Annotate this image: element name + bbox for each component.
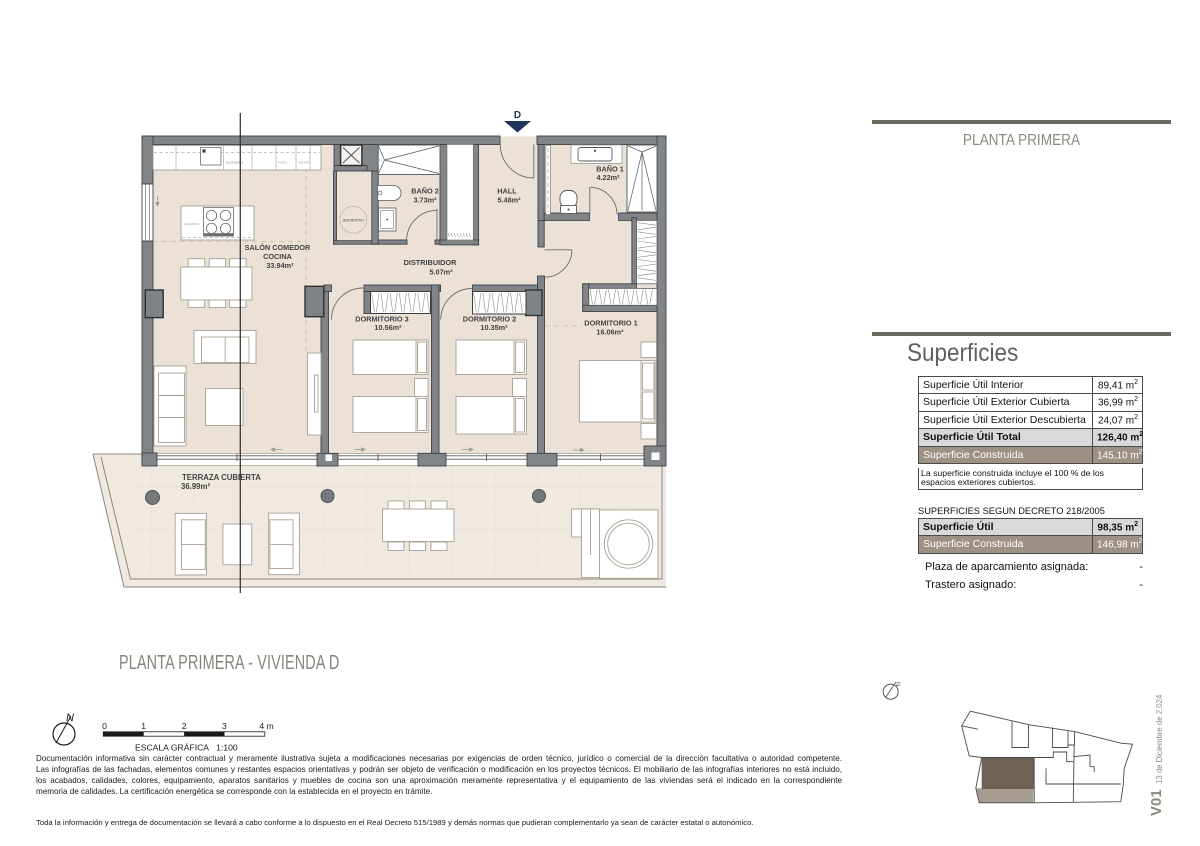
svg-text:33.94m²: 33.94m²	[266, 261, 294, 270]
svg-text:DISTRIBUIDOR: DISTRIBUIDOR	[404, 258, 457, 267]
svg-text:10.35m²: 10.35m²	[480, 323, 508, 332]
svg-text:BAÑO 2: BAÑO 2	[411, 187, 439, 196]
svg-text:2: 2	[182, 721, 187, 731]
svg-text:nevera: nevera	[298, 161, 309, 165]
svg-text:0: 0	[102, 721, 107, 731]
svg-text:ESCALA GRÁFICA 1:100: ESCALA GRÁFICA 1:100	[135, 743, 238, 753]
svg-text:SALÓN COMEDOR: SALÓN COMEDOR	[245, 243, 311, 252]
svg-text:DORMITORIO 1: DORMITORIO 1	[584, 319, 637, 328]
svg-text:horno: horno	[278, 161, 287, 165]
svg-text:5.07m²: 5.07m²	[429, 268, 453, 277]
svg-text:D: D	[514, 110, 521, 121]
svg-text:COCINA: COCINA	[263, 252, 293, 261]
svg-text:N: N	[66, 712, 74, 724]
svg-text:16.06m²: 16.06m²	[596, 328, 624, 337]
svg-text:4.22m²: 4.22m²	[596, 173, 620, 182]
svg-text:1: 1	[141, 721, 146, 731]
svg-text:36.99m²: 36.99m²	[181, 482, 210, 491]
svg-text:aerotermo: aerotermo	[343, 218, 364, 223]
svg-text:HALL: HALL	[497, 187, 517, 196]
svg-text:N: N	[894, 682, 900, 686]
svg-text:10.56m²: 10.56m²	[374, 323, 402, 332]
svg-text:TERRAZA CUBIERTA: TERRAZA CUBIERTA	[182, 473, 261, 482]
svg-text:Lavadora: Lavadora	[184, 222, 199, 226]
svg-text:3.73m²: 3.73m²	[413, 196, 437, 205]
svg-text:4 m: 4 m	[259, 721, 273, 731]
svg-text:3: 3	[222, 721, 227, 731]
svg-text:5.48m²: 5.48m²	[497, 196, 521, 205]
